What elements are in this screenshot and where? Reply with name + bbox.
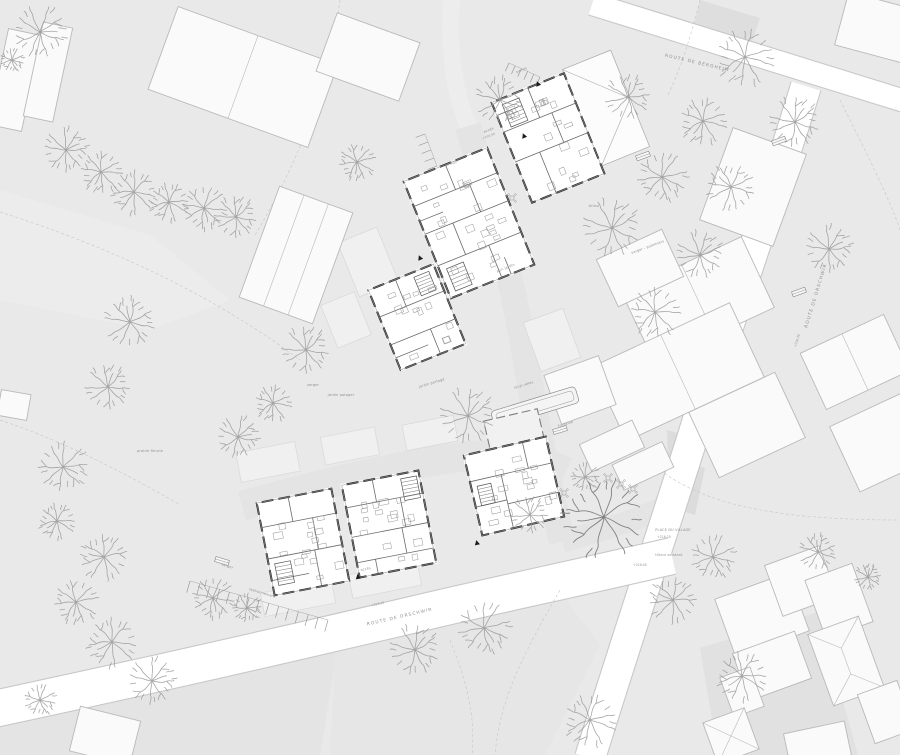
plan-outer-wall	[257, 489, 350, 596]
site-plan-drawing: ROUTE DE ORSCHWIRROUTE DE ORSCHWIRROUTE …	[0, 0, 900, 755]
context-building	[0, 390, 31, 421]
site-plan-canvas: ROUTE DE ORSCHWIRROUTE DE ORSCHWIRROUTE …	[0, 0, 900, 755]
site-label: prairie fleurie	[137, 449, 163, 453]
site-label: PLACE DU VILLAGE	[655, 528, 690, 532]
elevation-label: +216.40	[633, 563, 646, 567]
site-label: verger	[307, 383, 320, 387]
plan-building	[342, 470, 437, 577]
plan-building	[257, 489, 350, 596]
site-label: tilleul	[589, 204, 600, 208]
elevation-label: +216.20	[657, 535, 670, 539]
site-label: jardin potager	[327, 393, 355, 397]
context-building-footprint	[0, 390, 31, 421]
site-label: tilleul existant	[655, 553, 683, 557]
